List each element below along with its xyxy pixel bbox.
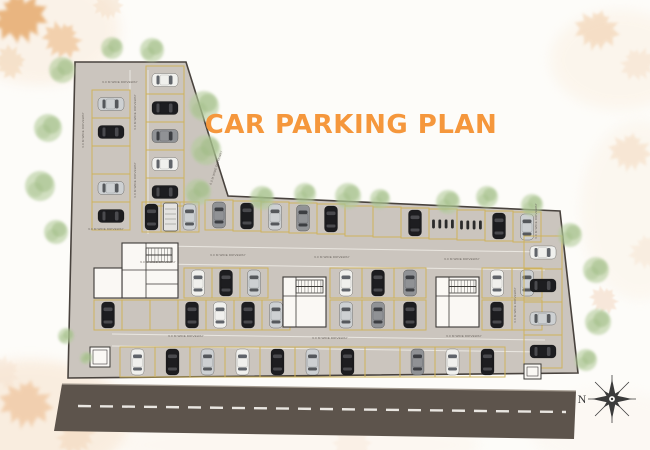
car-windshield bbox=[406, 276, 415, 280]
car-roof bbox=[538, 281, 547, 291]
tree bbox=[58, 328, 74, 344]
car-roof bbox=[106, 99, 115, 109]
car-roof bbox=[448, 358, 458, 367]
driveway-width-label: 6.0 M WIDE DRIVEWAY bbox=[81, 112, 85, 148]
tree bbox=[476, 186, 498, 208]
car-windshield bbox=[299, 211, 308, 215]
tree-canopy-shade bbox=[28, 182, 43, 197]
car-windshield bbox=[185, 210, 194, 214]
core-outline bbox=[122, 243, 178, 298]
car-roof bbox=[298, 214, 308, 223]
driveway-width-label: 6.0 M WIDE DRIVEWAY bbox=[210, 253, 246, 257]
car-rear-window bbox=[535, 314, 538, 323]
car-roof bbox=[373, 311, 383, 320]
car bbox=[241, 203, 254, 229]
car-windshield bbox=[238, 355, 247, 359]
car-roof bbox=[249, 279, 259, 288]
car bbox=[98, 98, 124, 111]
car-rear-window bbox=[157, 160, 160, 169]
tree-canopy-shade bbox=[81, 357, 87, 363]
car-roof bbox=[271, 311, 281, 320]
car-rear-window bbox=[406, 321, 415, 324]
tree-canopy-shade bbox=[478, 194, 489, 205]
car bbox=[152, 102, 178, 115]
tree-canopy-shade bbox=[523, 202, 534, 213]
car-windshield bbox=[115, 128, 119, 137]
car-roof bbox=[185, 213, 195, 222]
two-wheeler bbox=[432, 220, 435, 229]
tree-canopy-shade bbox=[188, 189, 201, 202]
car-roof bbox=[341, 279, 351, 288]
driveway-width-label: 6.0 M WIDE DRIVEWAY bbox=[312, 336, 348, 340]
car-roof bbox=[538, 248, 547, 258]
car-rear-window bbox=[168, 368, 177, 371]
car-rear-window bbox=[535, 347, 538, 356]
car bbox=[166, 349, 179, 375]
car-rear-window bbox=[133, 368, 142, 371]
car bbox=[306, 349, 319, 375]
car-rear-window bbox=[243, 222, 252, 225]
road bbox=[54, 384, 576, 439]
car bbox=[372, 270, 385, 296]
car bbox=[214, 302, 227, 328]
driveway-width-label: 6.0 M WIDE DRIVEWAY bbox=[88, 227, 124, 231]
car-rear-window bbox=[308, 368, 317, 371]
car-rear-window bbox=[104, 321, 113, 324]
car-windshield bbox=[547, 248, 551, 257]
car-rear-window bbox=[157, 104, 160, 113]
car-windshield bbox=[169, 188, 173, 197]
car-roof bbox=[343, 358, 353, 367]
two-wheeler bbox=[466, 221, 469, 230]
driveway-width-label: 6.0 M WIDE DRIVEWAY bbox=[140, 260, 176, 264]
car-roof bbox=[160, 103, 169, 113]
car-rear-window bbox=[215, 221, 224, 224]
car bbox=[213, 202, 226, 228]
car-roof bbox=[242, 212, 252, 221]
tree bbox=[585, 309, 611, 335]
car-windshield bbox=[448, 355, 457, 359]
car bbox=[341, 349, 354, 375]
car-rear-window bbox=[327, 225, 336, 228]
car-windshield bbox=[215, 208, 224, 212]
tree-canopy-shade bbox=[46, 229, 58, 241]
car bbox=[409, 210, 422, 236]
car-windshield bbox=[343, 355, 352, 359]
car-windshield bbox=[133, 355, 142, 359]
car-roof bbox=[538, 347, 547, 357]
car-windshield bbox=[250, 276, 259, 280]
building-core bbox=[436, 277, 479, 327]
car bbox=[404, 302, 417, 328]
van bbox=[164, 203, 178, 231]
tree bbox=[101, 37, 123, 59]
tree bbox=[370, 189, 390, 209]
two-wheeler bbox=[451, 220, 454, 229]
car bbox=[98, 126, 124, 139]
car bbox=[446, 349, 459, 375]
car-rear-window bbox=[103, 100, 106, 109]
car-rear-window bbox=[188, 321, 197, 324]
car-rear-window bbox=[535, 248, 538, 257]
car bbox=[192, 270, 205, 296]
car bbox=[270, 302, 283, 328]
driveway-width-label: 6.0 M WIDE DRIVEWAY bbox=[102, 80, 138, 84]
tree bbox=[575, 349, 597, 371]
compass-center-dot bbox=[611, 398, 613, 400]
parking-row bbox=[330, 300, 426, 330]
tree-canopy-shade bbox=[52, 67, 65, 80]
car-rear-window bbox=[103, 128, 106, 137]
car bbox=[491, 270, 504, 296]
car bbox=[102, 302, 115, 328]
car-windshield bbox=[547, 314, 551, 323]
car-roof bbox=[405, 279, 415, 288]
car-parking-plan-page: 6.0 M WIDE DRIVEWAY6.0 M WIDE DRIVEWAY6.… bbox=[0, 0, 650, 450]
car-windshield bbox=[244, 308, 253, 312]
parking-row bbox=[94, 300, 206, 330]
car-rear-window bbox=[194, 289, 203, 292]
car-rear-window bbox=[342, 321, 351, 324]
car-windshield bbox=[169, 132, 173, 141]
car bbox=[491, 302, 504, 328]
car-windshield bbox=[271, 210, 280, 214]
car-roof bbox=[160, 187, 169, 197]
car-roof bbox=[522, 223, 532, 232]
building-core bbox=[283, 277, 326, 327]
car-windshield bbox=[547, 281, 551, 290]
car-rear-window bbox=[448, 368, 457, 371]
car-roof bbox=[168, 358, 178, 367]
car-rear-window bbox=[343, 368, 352, 371]
car bbox=[269, 204, 282, 230]
car-windshield bbox=[273, 355, 282, 359]
car-windshield bbox=[104, 308, 113, 312]
driveway-width-label: 6.0 M WIDE DRIVEWAY bbox=[133, 162, 137, 198]
building-core bbox=[94, 268, 122, 298]
car-roof bbox=[413, 358, 423, 367]
tree bbox=[49, 57, 75, 83]
driveway-width-label: 6.0 M WIDE DRIVEWAY bbox=[534, 203, 538, 239]
car-windshield bbox=[413, 355, 422, 359]
car-windshield bbox=[547, 347, 551, 356]
car-rear-window bbox=[203, 368, 212, 371]
car bbox=[404, 270, 417, 296]
tree bbox=[25, 171, 55, 201]
car-windshield bbox=[169, 76, 173, 85]
car-rear-window bbox=[222, 289, 231, 292]
car bbox=[131, 349, 144, 375]
car-rear-window bbox=[535, 281, 538, 290]
car-windshield bbox=[342, 276, 351, 280]
car-roof bbox=[405, 311, 415, 320]
car-windshield bbox=[327, 212, 336, 216]
core-outline bbox=[283, 277, 326, 327]
car bbox=[220, 270, 233, 296]
car-rear-window bbox=[406, 289, 415, 292]
car bbox=[297, 205, 310, 231]
car bbox=[325, 206, 338, 232]
car-rear-window bbox=[244, 321, 253, 324]
car-roof bbox=[308, 358, 318, 367]
two-wheeler bbox=[479, 221, 482, 230]
tree bbox=[185, 179, 211, 205]
car-windshield bbox=[374, 276, 383, 280]
two-wheeler bbox=[445, 220, 448, 229]
compass-north-label: N bbox=[578, 392, 587, 406]
car-rear-window bbox=[272, 321, 281, 324]
car-roof bbox=[147, 213, 157, 222]
car-rear-window bbox=[103, 212, 106, 221]
car-roof bbox=[494, 222, 504, 231]
car bbox=[493, 213, 506, 239]
car bbox=[248, 270, 261, 296]
car-roof bbox=[160, 75, 169, 85]
car bbox=[481, 349, 494, 375]
car-windshield bbox=[272, 308, 281, 312]
car bbox=[242, 302, 255, 328]
car-windshield bbox=[523, 220, 532, 224]
parking-row bbox=[120, 347, 505, 377]
car-rear-window bbox=[493, 289, 502, 292]
car-roof bbox=[341, 311, 351, 320]
utility-box bbox=[90, 347, 110, 367]
car-rear-window bbox=[411, 229, 420, 232]
car bbox=[152, 74, 178, 87]
tree bbox=[521, 194, 543, 216]
car-roof bbox=[106, 183, 115, 193]
tree-canopy-shade bbox=[252, 195, 264, 207]
driveway-width-label: 6.0 M WIDE DRIVEWAY bbox=[444, 257, 480, 261]
driveway-width-label: 6.0 M WIDE DRIVEWAY bbox=[314, 255, 350, 259]
car-rear-window bbox=[238, 368, 247, 371]
driveway-width-label: 6.0 M WIDE DRIVEWAY bbox=[513, 287, 517, 323]
car-windshield bbox=[194, 276, 203, 280]
car-roof bbox=[492, 279, 502, 288]
car-rear-window bbox=[299, 224, 308, 227]
car-roof bbox=[238, 358, 248, 367]
tree-canopy-shade bbox=[296, 191, 307, 202]
car-rear-window bbox=[374, 289, 383, 292]
car bbox=[530, 345, 556, 358]
tree-canopy-shade bbox=[438, 199, 450, 211]
car-roof bbox=[273, 358, 283, 367]
car-windshield bbox=[203, 355, 212, 359]
car-roof bbox=[492, 311, 502, 320]
car-windshield bbox=[308, 355, 317, 359]
car-rear-window bbox=[103, 184, 106, 193]
car bbox=[236, 349, 249, 375]
tree bbox=[335, 183, 361, 209]
page-title: CAR PARKING PLAN bbox=[205, 110, 498, 140]
car bbox=[530, 312, 556, 325]
car-roof bbox=[103, 311, 113, 320]
car-windshield bbox=[115, 212, 119, 221]
car-roof bbox=[106, 211, 115, 221]
car-roof bbox=[270, 213, 280, 222]
car-windshield bbox=[406, 308, 415, 312]
tree bbox=[583, 257, 609, 283]
parking-row bbox=[184, 268, 268, 298]
tree-canopy-shade bbox=[37, 125, 51, 139]
car-windshield bbox=[493, 308, 502, 312]
car bbox=[530, 279, 556, 292]
car-rear-window bbox=[483, 368, 492, 371]
van-body bbox=[164, 203, 178, 231]
car-roof bbox=[221, 279, 231, 288]
car bbox=[145, 204, 158, 230]
car bbox=[186, 302, 199, 328]
car-roof bbox=[326, 215, 336, 224]
core-outline bbox=[94, 268, 122, 298]
tree-canopy-shade bbox=[577, 357, 588, 368]
car-rear-window bbox=[157, 76, 160, 85]
car-windshield bbox=[342, 308, 351, 312]
car bbox=[152, 158, 178, 171]
car-windshield bbox=[483, 355, 492, 359]
car-roof bbox=[106, 127, 115, 137]
car bbox=[340, 270, 353, 296]
tree bbox=[140, 38, 164, 62]
car-windshield bbox=[169, 104, 173, 113]
car-roof bbox=[187, 311, 197, 320]
tree-canopy-shade bbox=[338, 193, 351, 206]
car-rear-window bbox=[271, 223, 280, 226]
car-rear-window bbox=[374, 321, 383, 324]
car-rear-window bbox=[157, 132, 160, 141]
car bbox=[201, 349, 214, 375]
car bbox=[372, 302, 385, 328]
car-rear-window bbox=[250, 289, 259, 292]
two-wheeler bbox=[438, 220, 441, 229]
car-rear-window bbox=[185, 223, 194, 226]
two-wheeler bbox=[460, 221, 463, 230]
utility-box bbox=[524, 364, 541, 379]
tree bbox=[34, 114, 62, 142]
car-windshield bbox=[243, 209, 252, 213]
tree bbox=[558, 223, 582, 247]
tree bbox=[44, 220, 68, 244]
car-windshield bbox=[169, 160, 173, 169]
car-windshield bbox=[222, 276, 231, 280]
driveway-width-label: 6.0 M WIDE DRIVEWAY bbox=[168, 334, 204, 338]
car-windshield bbox=[115, 100, 119, 109]
car-windshield bbox=[188, 308, 197, 312]
car-windshield bbox=[115, 184, 119, 193]
car bbox=[271, 349, 284, 375]
car bbox=[340, 302, 353, 328]
tree-canopy-shade bbox=[560, 232, 572, 244]
building-core bbox=[122, 243, 178, 298]
car-roof bbox=[193, 279, 203, 288]
car-windshield bbox=[374, 308, 383, 312]
car bbox=[152, 130, 178, 143]
car-roof bbox=[483, 358, 493, 367]
tree-canopy-shade bbox=[103, 45, 114, 56]
car-roof bbox=[243, 311, 253, 320]
car-rear-window bbox=[273, 368, 282, 371]
car bbox=[98, 210, 124, 223]
parking-row bbox=[142, 202, 199, 232]
car bbox=[152, 186, 178, 199]
car-rear-window bbox=[342, 289, 351, 292]
car-windshield bbox=[147, 210, 156, 214]
car-roof bbox=[538, 314, 547, 324]
car-roof bbox=[160, 159, 169, 169]
car-windshield bbox=[493, 276, 502, 280]
car-roof bbox=[203, 358, 213, 367]
tree-canopy-shade bbox=[586, 267, 599, 280]
car bbox=[411, 349, 424, 375]
two-wheeler bbox=[473, 221, 476, 230]
car-rear-window bbox=[147, 223, 156, 226]
tree bbox=[436, 190, 460, 214]
car-windshield bbox=[411, 216, 420, 220]
parking-row bbox=[206, 300, 290, 330]
parking-row bbox=[330, 268, 426, 298]
car-rear-window bbox=[523, 233, 532, 236]
utility-box-outline bbox=[524, 364, 541, 379]
car-rear-window bbox=[493, 321, 502, 324]
car-roof bbox=[410, 219, 420, 228]
car bbox=[98, 182, 124, 195]
car-windshield bbox=[168, 355, 177, 359]
tree-canopy-shade bbox=[372, 197, 382, 207]
car-roof bbox=[214, 211, 224, 220]
car-windshield bbox=[216, 308, 225, 312]
tree bbox=[250, 186, 274, 210]
car-rear-window bbox=[495, 232, 504, 235]
car-windshield bbox=[495, 219, 504, 223]
tree-canopy-shade bbox=[142, 47, 154, 59]
core-outline bbox=[436, 277, 479, 327]
car-roof bbox=[160, 131, 169, 141]
tree-canopy-shade bbox=[588, 319, 601, 332]
car-roof bbox=[373, 279, 383, 288]
tree bbox=[80, 352, 92, 364]
car-rear-window bbox=[413, 368, 422, 371]
car bbox=[183, 204, 196, 230]
driveway-width-label: 6.0 M WIDE DRIVEWAY bbox=[446, 334, 482, 338]
site-plan-drawing: 6.0 M WIDE DRIVEWAY6.0 M WIDE DRIVEWAY6.… bbox=[0, 0, 650, 450]
car-roof bbox=[215, 311, 225, 320]
tree-canopy-shade bbox=[194, 146, 209, 161]
car-rear-window bbox=[157, 188, 160, 197]
car-roof bbox=[133, 358, 143, 367]
tree-canopy-shade bbox=[60, 334, 68, 342]
driveway-width-label: 6.0 M WIDE DRIVEWAY bbox=[133, 94, 137, 130]
car-rear-window bbox=[216, 321, 225, 324]
car bbox=[530, 246, 556, 259]
tree bbox=[294, 183, 316, 205]
